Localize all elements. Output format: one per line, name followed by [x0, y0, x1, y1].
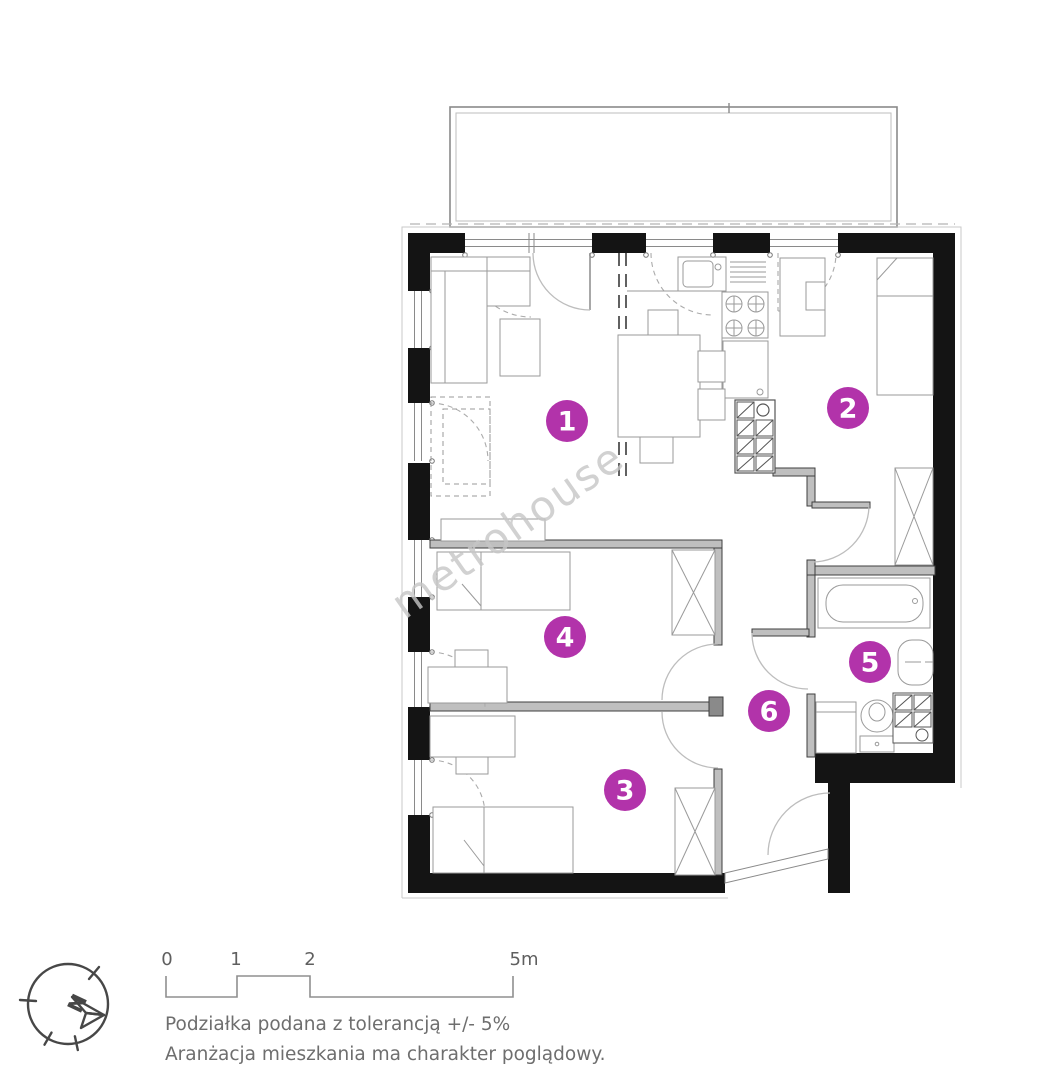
- note-arrangement: Aranżacja mieszkania ma charakter pogląd…: [165, 1044, 606, 1065]
- window-top-room2: [770, 233, 838, 253]
- room-label-4: 4: [544, 616, 586, 658]
- svg-text:6: 6: [760, 697, 779, 728]
- svg-text:4: 4: [556, 623, 575, 654]
- kitchen-duct: [735, 400, 775, 473]
- svg-text:3: 3: [616, 776, 635, 807]
- svg-text:2: 2: [304, 949, 315, 970]
- scale-bar: 0 1 2 5m: [161, 949, 538, 997]
- room-label-5: 5: [849, 641, 891, 683]
- floorplan-drawing: metrohouse 1 2 3 4 5 6: [0, 0, 1039, 1080]
- window-top-living: [465, 233, 592, 253]
- entrance-door: [725, 793, 830, 883]
- svg-text:5m: 5m: [510, 949, 539, 970]
- svg-text:1: 1: [230, 949, 241, 970]
- bathtub: [818, 578, 930, 628]
- room-label-6: 6: [748, 690, 790, 732]
- floorplan-page: metrohouse 1 2 3 4 5 6: [0, 0, 1039, 1080]
- wardrobe-room4: [672, 550, 715, 635]
- svg-text:2: 2: [839, 394, 858, 425]
- washing-machine: [816, 702, 856, 753]
- bed-room2: [877, 258, 933, 395]
- note-tolerance: Podziałka podana z tolerancją +/- 5%: [165, 1014, 510, 1035]
- svg-text:5: 5: [861, 648, 880, 679]
- wardrobe-room2: [895, 468, 933, 565]
- svg-text:0: 0: [161, 949, 172, 970]
- washbasin: [898, 640, 933, 685]
- balcony: [410, 103, 955, 227]
- compass-icon: N: [20, 964, 108, 1050]
- window-top-kitchen: [646, 233, 713, 253]
- bed-room3: [433, 807, 573, 873]
- dining-table: [618, 310, 725, 463]
- bathroom-duct: [893, 693, 933, 743]
- room-label-3: 3: [604, 769, 646, 811]
- stove: [722, 292, 768, 338]
- toilet: [860, 700, 894, 752]
- wardrobe-room3: [675, 788, 715, 875]
- svg-text:1: 1: [558, 407, 577, 438]
- room-label-2: 2: [827, 387, 869, 429]
- sink-drainer: [730, 262, 766, 282]
- room-label-1: 1: [546, 400, 588, 442]
- plan-notes: Podziałka podana z tolerancją +/- 5% Ara…: [165, 1014, 606, 1065]
- room3-furniture: [430, 716, 715, 875]
